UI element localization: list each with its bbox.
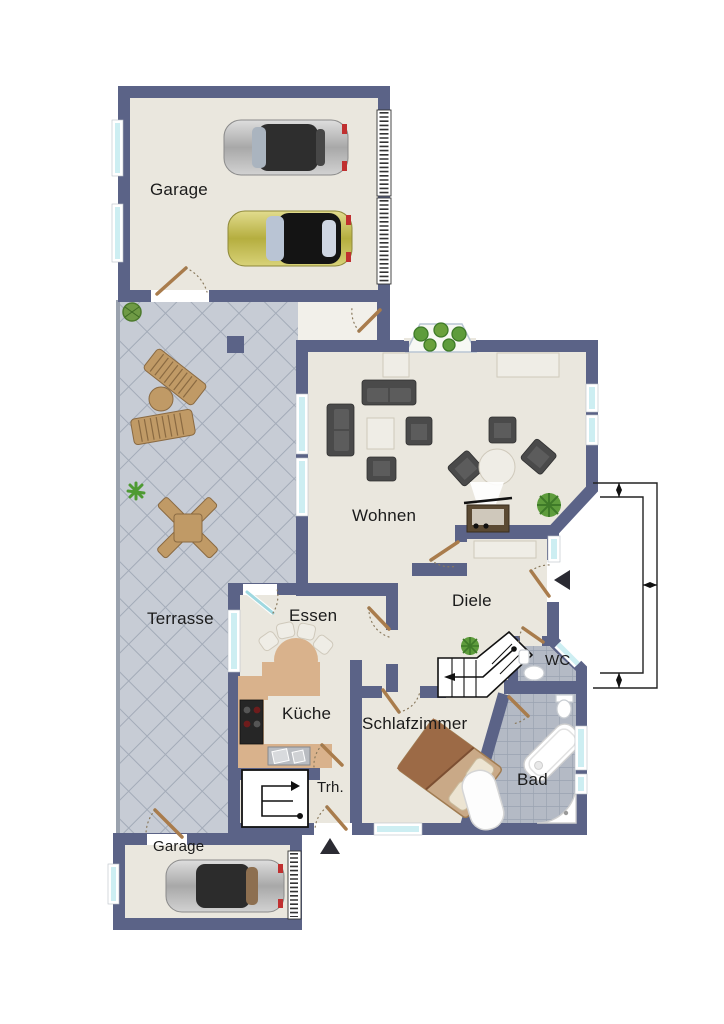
stove-icon	[240, 700, 263, 744]
room-label-garage-top: Garage	[150, 180, 208, 200]
room-label-schlafzimmer: Schlafzimmer	[362, 714, 467, 734]
plant-icon	[461, 637, 479, 655]
room-label-treppenhaus: Trh.	[317, 779, 344, 796]
plant-icon	[537, 493, 561, 517]
room-label-kueche: Küche	[282, 704, 331, 724]
sideboard-icon	[383, 353, 409, 377]
room-label-garage-bottom: Garage	[153, 838, 204, 855]
silver-car	[166, 860, 284, 912]
armchair-icon	[406, 417, 432, 445]
room-label-essen: Essen	[289, 606, 337, 626]
round-table-icon	[479, 449, 515, 485]
terrace-post	[227, 336, 244, 353]
silver-sports-car	[224, 120, 348, 175]
garage-top	[112, 92, 391, 331]
armchair-icon	[489, 417, 516, 443]
toilet-icon	[524, 666, 544, 680]
yellow-black-car	[228, 211, 352, 266]
patio-side-table	[149, 387, 173, 411]
coffee-table-icon	[367, 418, 394, 449]
room-label-wohnen: Wohnen	[352, 506, 416, 526]
stair-run-icon	[242, 770, 308, 827]
room-label-terrasse: Terrasse	[147, 609, 214, 629]
sideboard-icon	[497, 353, 559, 377]
floor-plan-image: Garage Terrasse Wohnen Essen Diele WC Kü…	[0, 0, 724, 1024]
room-label-diele: Diele	[452, 591, 492, 611]
garage-door-icon	[288, 851, 301, 919]
room-label-wc: WC	[545, 652, 570, 669]
plant-icon	[123, 303, 141, 321]
armchair-icon	[367, 457, 396, 481]
room-label-bad: Bad	[517, 770, 548, 790]
dimension-lines	[593, 483, 657, 688]
sideboard-icon	[474, 541, 536, 558]
sink-icon	[519, 650, 529, 664]
entrance-arrow-icon	[320, 838, 340, 854]
sofa-icon	[362, 380, 416, 405]
terrace-edge	[116, 300, 120, 838]
sofa-icon	[327, 404, 354, 456]
bay-window	[402, 323, 478, 354]
kitchen-sink-icon	[268, 747, 310, 765]
